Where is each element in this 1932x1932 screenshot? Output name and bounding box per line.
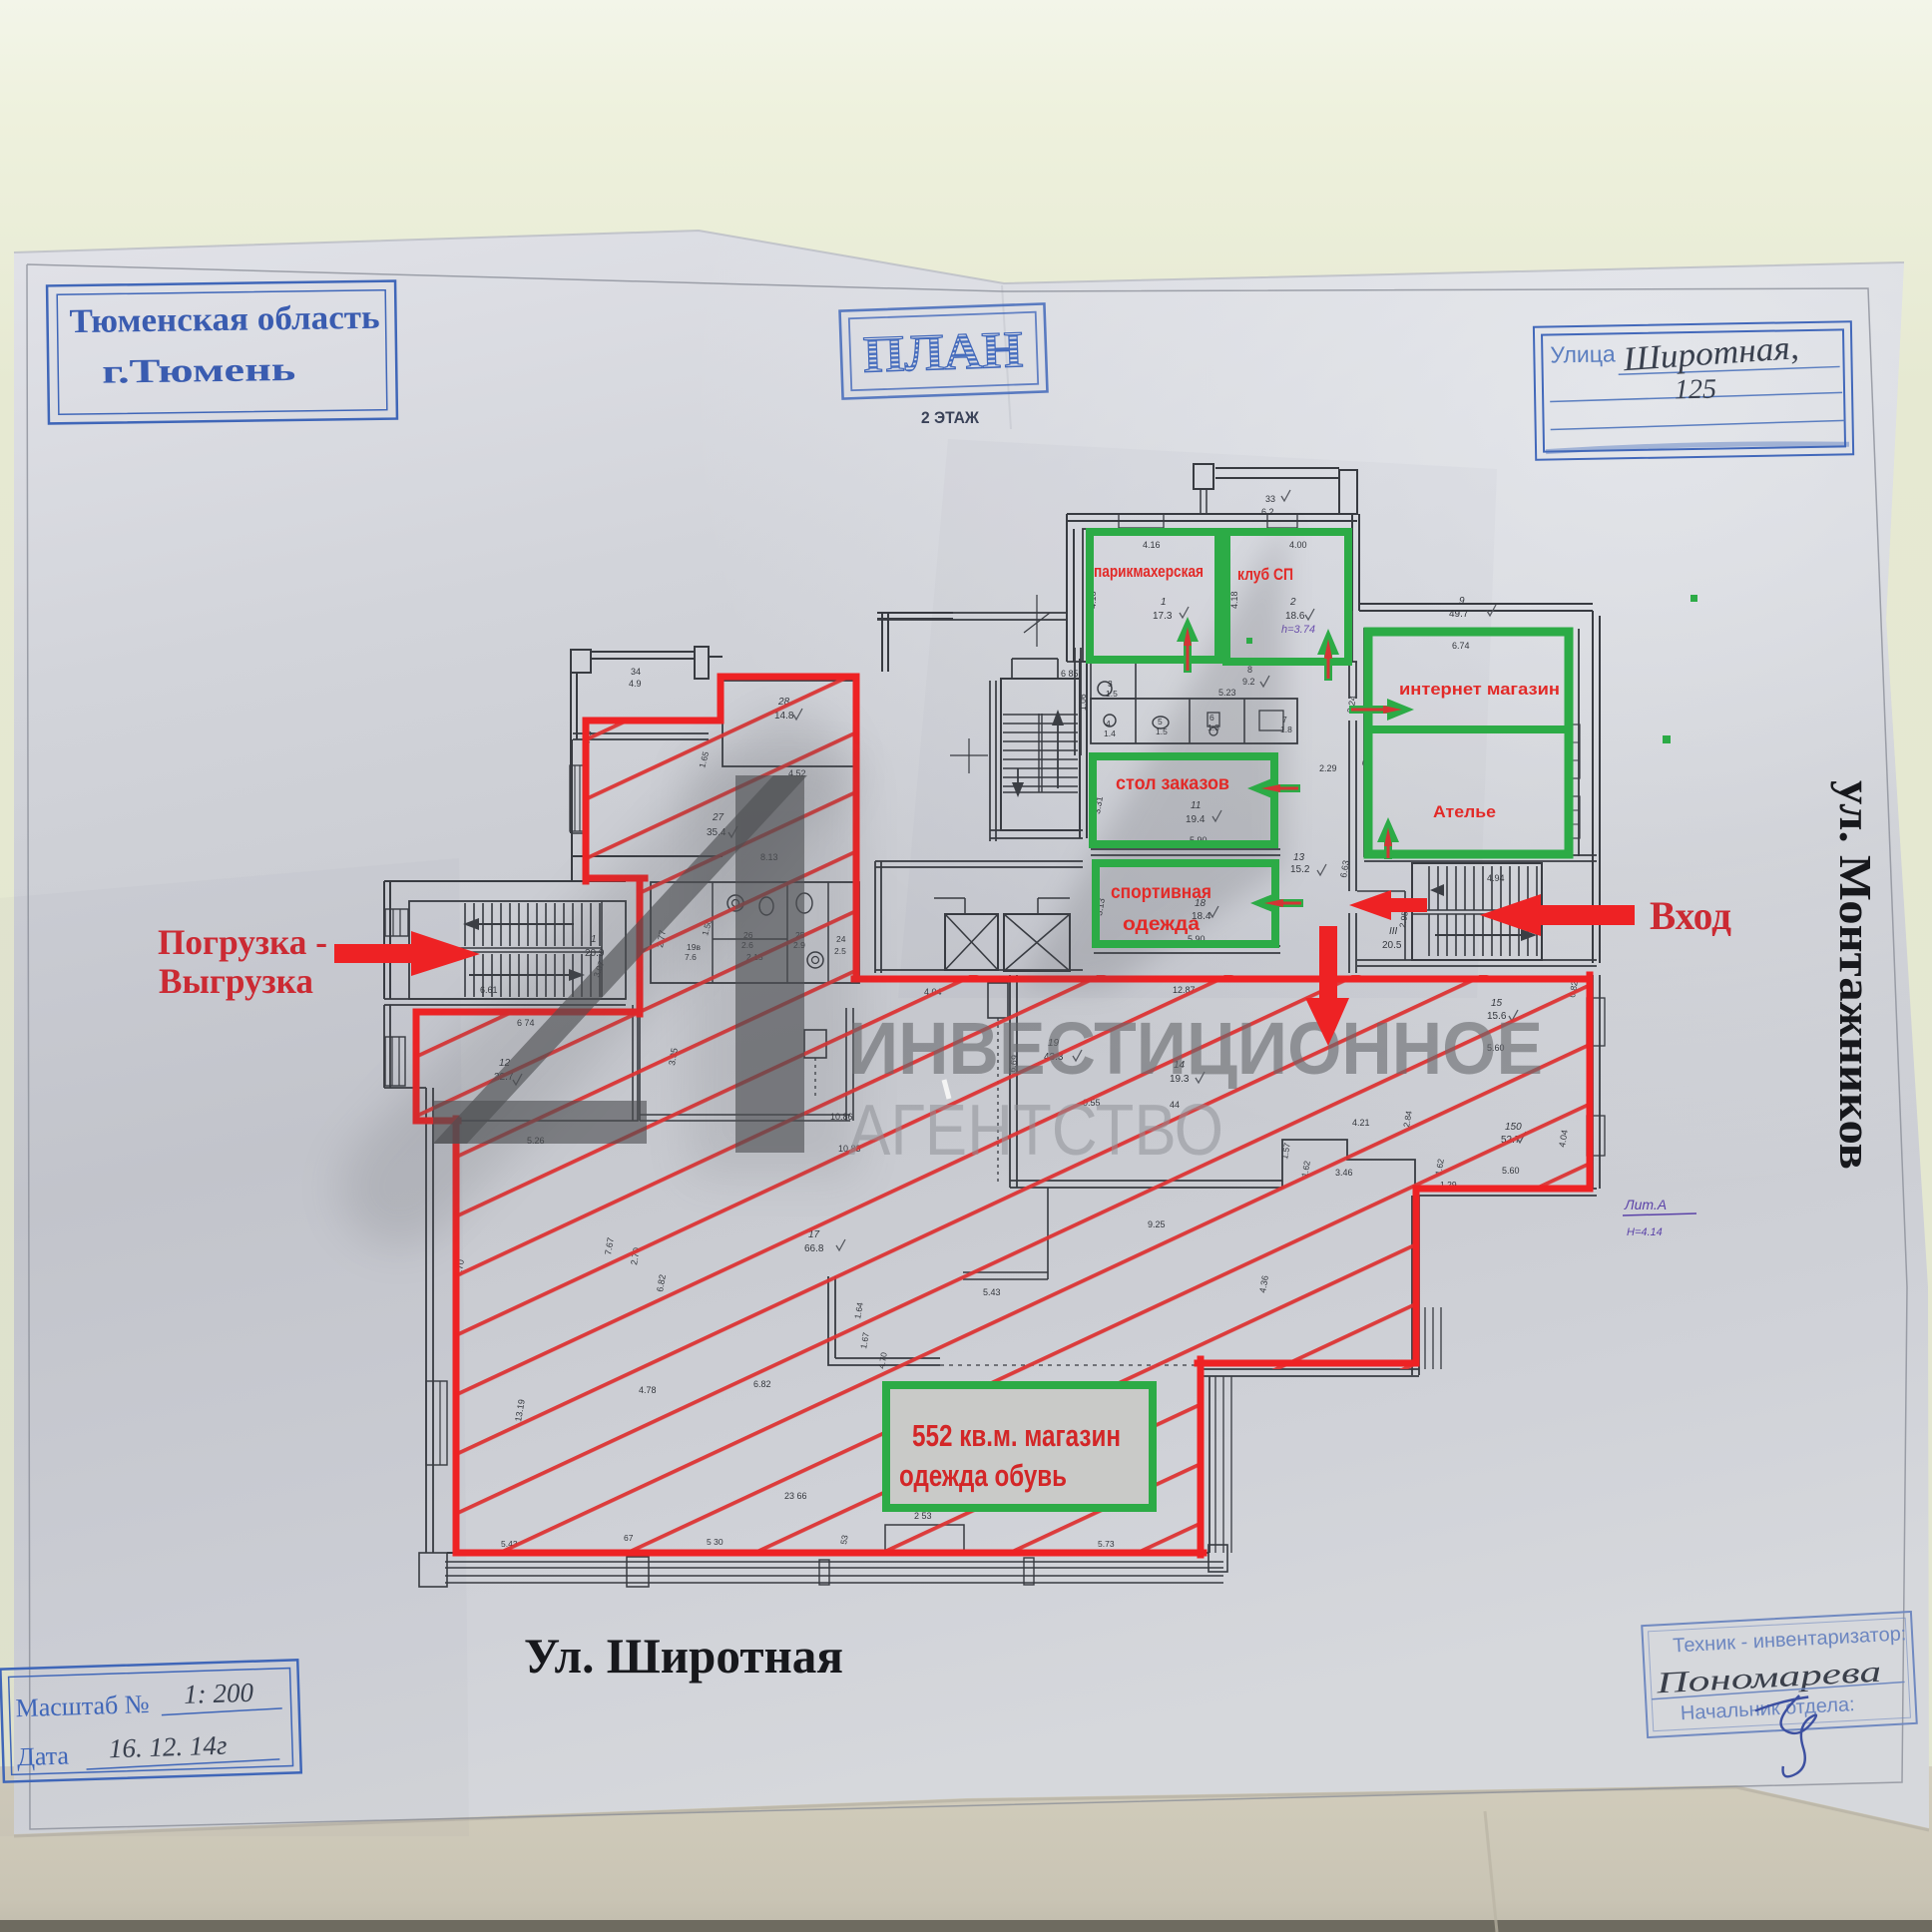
- svg-text:III: III: [1389, 926, 1398, 937]
- svg-text:Лит.А: Лит.А: [1624, 1197, 1667, 1212]
- svg-text:1: 200: 1: 200: [184, 1678, 254, 1709]
- svg-text:Погрузка -: Погрузка -: [158, 922, 327, 962]
- svg-text:стол заказов: стол заказов: [1116, 773, 1229, 794]
- svg-text:ИНВЕСТИЦИОННОЕ: ИНВЕСТИЦИОННОЕ: [848, 1007, 1543, 1090]
- svg-text:9: 9: [1459, 596, 1465, 607]
- svg-text:4.9: 4.9: [629, 679, 642, 689]
- svg-text:Вход: Вход: [1650, 893, 1731, 938]
- svg-text:6.74: 6.74: [1452, 641, 1470, 651]
- svg-text:1.06: 1.06: [1078, 694, 1088, 711]
- svg-text:Дата: Дата: [17, 1741, 70, 1772]
- svg-text:18.6: 18.6: [1285, 611, 1305, 622]
- svg-text:интернет магазин: интернет магазин: [1399, 680, 1560, 699]
- svg-text:h=3.74: h=3.74: [1281, 624, 1315, 636]
- svg-text:Ателье: Ателье: [1433, 802, 1496, 821]
- svg-text:3: 3: [1108, 679, 1113, 689]
- svg-text:парикмахерская: парикмахерская: [1094, 562, 1204, 581]
- svg-text:125: 125: [1675, 374, 1717, 406]
- svg-text:Ул. Широтная: Ул. Широтная: [524, 1628, 843, 1684]
- svg-text:ПЛАН: ПЛАН: [862, 321, 1024, 384]
- svg-text:49.7: 49.7: [1449, 609, 1469, 620]
- svg-text:ул. Монтажников: ул. Монтажников: [1830, 780, 1881, 1170]
- svg-text:одежда: одежда: [1123, 914, 1200, 935]
- svg-text:1.4: 1.4: [1104, 728, 1116, 738]
- svg-text:34: 34: [631, 667, 641, 677]
- svg-text:6 85: 6 85: [1061, 669, 1079, 679]
- svg-text:17.3: 17.3: [1153, 611, 1173, 622]
- svg-text:одежда обувь: одежда обувь: [899, 1458, 1067, 1493]
- svg-text:20.5: 20.5: [1382, 940, 1402, 951]
- svg-text:Н=4.14: Н=4.14: [1627, 1226, 1663, 1238]
- svg-text:1: 1: [1161, 597, 1167, 608]
- svg-text:4.00: 4.00: [1289, 540, 1307, 550]
- svg-text:4.16: 4.16: [1143, 540, 1161, 550]
- svg-text:16. 12. 14г: 16. 12. 14г: [108, 1730, 227, 1764]
- svg-text:2 ЭТАЖ: 2 ЭТАЖ: [921, 408, 980, 427]
- svg-text:клуб СП: клуб СП: [1237, 565, 1293, 584]
- svg-text:2.29: 2.29: [1319, 763, 1337, 773]
- svg-text:АГЕНТСТВО: АГЕНТСТВО: [848, 1091, 1223, 1171]
- svg-text:Улица: Улица: [1550, 340, 1616, 367]
- svg-text:4: 4: [1106, 719, 1111, 728]
- svg-text:33: 33: [1265, 494, 1275, 504]
- svg-text:спортивная: спортивная: [1111, 882, 1211, 903]
- svg-text:6.2: 6.2: [1261, 507, 1274, 517]
- svg-text:15.2: 15.2: [1290, 864, 1310, 875]
- svg-text:552 кв.м. магазин: 552 кв.м. магазин: [912, 1418, 1121, 1453]
- svg-text:2: 2: [1289, 597, 1296, 608]
- svg-text:13: 13: [1293, 852, 1305, 863]
- svg-text:5: 5: [1158, 717, 1163, 726]
- svg-text:Тюменская область: Тюменская область: [69, 299, 380, 340]
- svg-text:4.94: 4.94: [1487, 873, 1505, 883]
- svg-text:Масштаб №: Масштаб №: [15, 1690, 150, 1722]
- svg-text:6.61: 6.61: [480, 985, 498, 995]
- svg-text:1.5: 1.5: [1106, 689, 1118, 699]
- svg-text:г.Тюмень: г.Тюмень: [102, 351, 296, 391]
- svg-text:Выгрузка: Выгрузка: [159, 961, 313, 1001]
